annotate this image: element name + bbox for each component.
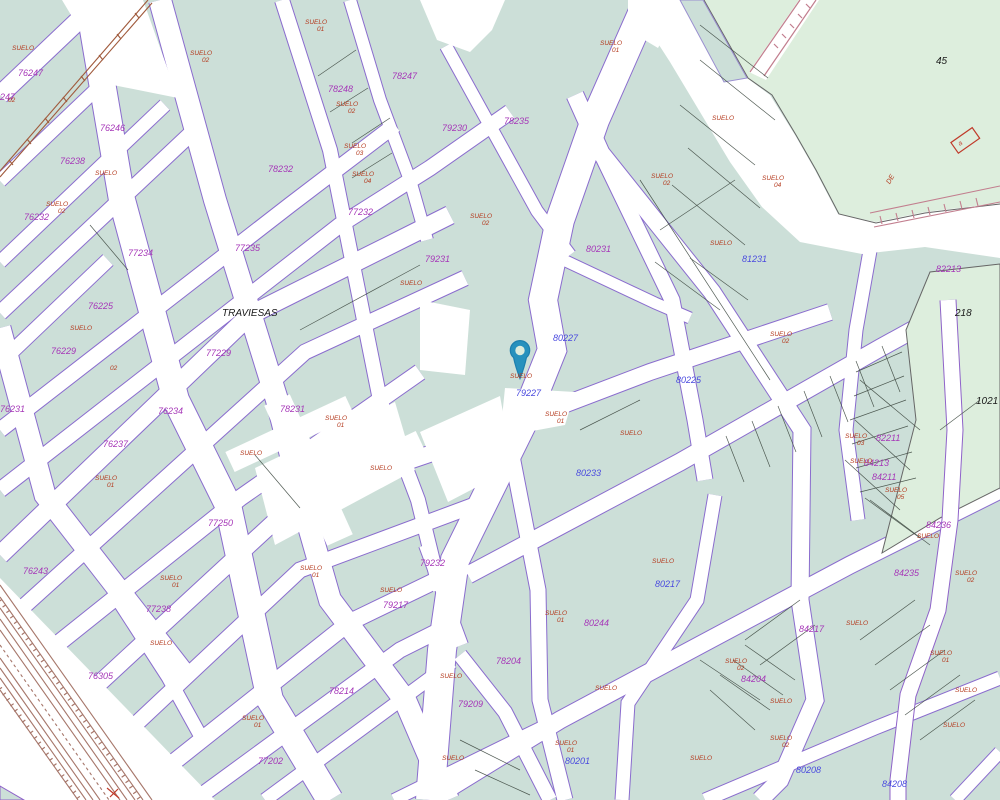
svg-text:84235: 84235 [894,568,920,578]
svg-text:SUELO: SUELO [846,620,868,627]
svg-text:77234: 77234 [128,248,153,258]
svg-text:SUELO: SUELO [46,201,68,208]
svg-text:02: 02 [58,208,66,215]
svg-text:SUELO: SUELO [955,570,977,577]
svg-text:SUELO: SUELO [555,740,577,747]
svg-text:05: 05 [897,494,905,501]
svg-text:SUELO: SUELO [325,415,347,422]
svg-text:SUELO: SUELO [652,558,674,565]
svg-text:SUELO: SUELO [651,173,673,180]
svg-text:SUELO: SUELO [240,450,262,457]
svg-text:SUELO: SUELO [380,587,402,594]
svg-text:01: 01 [612,47,620,54]
svg-text:79217: 79217 [383,600,409,610]
svg-text:SUELO: SUELO [70,325,92,332]
svg-text:80201: 80201 [565,756,590,766]
svg-text:02: 02 [482,220,490,227]
svg-text:02: 02 [348,108,356,115]
svg-text:76246: 76246 [100,123,125,133]
svg-text:01: 01 [557,418,565,425]
svg-text:SUELO: SUELO [710,240,732,247]
svg-text:77232: 77232 [348,207,373,217]
svg-text:SUELO: SUELO [12,45,34,52]
svg-text:SUELO: SUELO [595,685,617,692]
svg-text:SUELO: SUELO [305,19,327,26]
svg-text:76229: 76229 [51,346,76,356]
svg-text:SUELO: SUELO [510,373,532,380]
svg-text:03: 03 [356,150,364,157]
svg-text:78248: 78248 [328,84,353,94]
svg-text:80208: 80208 [796,765,821,775]
svg-text:01: 01 [942,657,950,664]
svg-text:SUELO: SUELO [470,213,492,220]
svg-text:SUELO: SUELO [955,687,977,694]
svg-text:76305: 76305 [88,671,114,681]
svg-text:76237: 76237 [103,439,129,449]
svg-text:SUELO: SUELO [770,698,792,705]
svg-text:02: 02 [202,57,210,64]
svg-text:76234: 76234 [158,406,183,416]
svg-text:02: 02 [663,180,671,187]
svg-text:02: 02 [782,338,790,345]
svg-text:76231: 76231 [0,404,25,414]
svg-text:77229: 77229 [206,348,231,358]
svg-text:81231: 81231 [742,254,767,264]
svg-text:78235: 78235 [504,116,530,126]
svg-text:02: 02 [110,365,118,372]
svg-text:01: 01 [312,572,320,579]
svg-text:76225: 76225 [88,301,114,311]
svg-text:84204: 84204 [741,674,766,684]
svg-text:01: 01 [107,482,115,489]
svg-text:SUELO: SUELO [770,331,792,338]
svg-text:02: 02 [782,742,790,749]
svg-text:84211: 84211 [872,472,896,482]
svg-text:76238: 76238 [60,156,85,166]
svg-text:03: 03 [857,440,865,447]
svg-text:77238: 77238 [146,604,171,614]
svg-text:01: 01 [557,617,565,624]
svg-text:SUELO: SUELO [352,171,374,178]
svg-text:SUELO: SUELO [95,170,117,177]
svg-text:78247: 78247 [392,71,418,81]
svg-text:SUELO: SUELO [712,115,734,122]
svg-text:SUELO: SUELO [917,533,939,540]
svg-text:218: 218 [954,308,972,319]
svg-text:SUELO: SUELO [770,735,792,742]
svg-text:SUELO: SUELO [344,143,366,150]
svg-text:77235: 77235 [235,243,261,253]
svg-text:SUELO: SUELO [600,40,622,47]
svg-text:77250: 77250 [208,518,233,528]
svg-text:01: 01 [254,722,262,729]
svg-text:01: 01 [317,26,325,33]
svg-text:45: 45 [936,56,948,67]
svg-text:79227: 79227 [516,388,542,398]
svg-text:76232: 76232 [24,212,49,222]
svg-text:SUELO: SUELO [242,715,264,722]
svg-text:SUELO: SUELO [336,101,358,108]
svg-text:01: 01 [567,747,575,754]
svg-text:SUELO: SUELO [400,280,422,287]
svg-text:80231: 80231 [586,244,611,254]
svg-text:02: 02 [737,665,745,672]
svg-text:SUELO: SUELO [690,755,712,762]
svg-text:04: 04 [364,178,372,185]
svg-text:80227: 80227 [553,333,579,343]
svg-text:SUELO: SUELO [885,487,907,494]
svg-text:02: 02 [967,577,975,584]
svg-text:SUELO: SUELO [440,673,462,680]
svg-text:78204: 78204 [496,656,521,666]
svg-text:SUELO: SUELO [300,565,322,572]
svg-text:04: 04 [774,182,782,189]
svg-text:01: 01 [337,422,345,429]
svg-text:02: 02 [8,97,16,104]
svg-text:76243: 76243 [23,566,48,576]
svg-text:80225: 80225 [676,375,702,385]
svg-text:SUELO: SUELO [150,640,172,647]
svg-text:78214: 78214 [329,686,354,696]
svg-text:84208: 84208 [882,779,907,789]
svg-text:SUELO: SUELO [545,610,567,617]
svg-text:SUELO: SUELO [850,458,872,465]
svg-text:SUELO: SUELO [95,475,117,482]
svg-text:SUELO: SUELO [762,175,784,182]
svg-text:79209: 79209 [458,699,483,709]
svg-text:77202: 77202 [258,756,283,766]
svg-text:80233: 80233 [576,468,601,478]
svg-text:76247: 76247 [18,68,44,78]
svg-text:78231: 78231 [280,404,305,414]
svg-text:79232: 79232 [420,558,445,568]
svg-text:SUELO: SUELO [545,411,567,418]
svg-text:84217: 84217 [799,624,825,634]
svg-text:79230: 79230 [442,123,467,133]
svg-text:79231: 79231 [425,254,450,264]
svg-text:80217: 80217 [655,579,681,589]
svg-text:SUELO: SUELO [930,650,952,657]
svg-text:78232: 78232 [268,164,293,174]
svg-text:80244: 80244 [584,618,609,628]
svg-text:82211: 82211 [876,433,900,443]
svg-text:SUELO: SUELO [190,50,212,57]
svg-text:SUELO: SUELO [725,658,747,665]
svg-text:SUELO: SUELO [620,430,642,437]
svg-text:TRAVIESAS: TRAVIESAS [222,308,278,319]
svg-text:01: 01 [172,582,180,589]
svg-text:84236: 84236 [926,520,951,530]
svg-text:82213: 82213 [936,264,961,274]
svg-text:SUELO: SUELO [845,433,867,440]
svg-text:SUELO: SUELO [160,575,182,582]
svg-text:SUELO: SUELO [943,722,965,729]
svg-text:SUELO: SUELO [370,465,392,472]
svg-text:1021: 1021 [976,396,998,407]
svg-text:SUELO: SUELO [442,755,464,762]
